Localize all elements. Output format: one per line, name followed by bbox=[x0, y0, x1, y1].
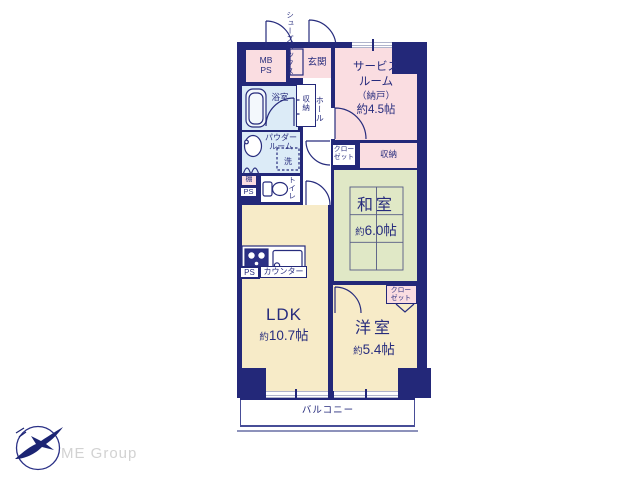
western-room-name: 洋室 bbox=[346, 320, 402, 338]
balcony-outer-line bbox=[237, 430, 418, 432]
western-closet-label: クロー ゼット bbox=[387, 287, 415, 303]
ldk-name: LDK bbox=[256, 305, 312, 325]
logo-mark bbox=[15, 427, 63, 470]
ps-shaft-kitchen-box: PS bbox=[239, 266, 260, 279]
powder-room-label: パウダー ルーム bbox=[260, 133, 302, 151]
counter-label: カウンター bbox=[264, 267, 304, 276]
ps-kitchen-label: PS bbox=[244, 268, 255, 277]
western-room-size: 約5.4帖 bbox=[342, 342, 406, 358]
washer-label: 洗 bbox=[284, 157, 292, 166]
pillar-bottom-left bbox=[237, 368, 266, 398]
ldk-size: 約10.7帖 bbox=[246, 328, 322, 344]
toilet-label: トイレ bbox=[287, 176, 296, 200]
shoes-box-label-col2: ボックス bbox=[286, 43, 295, 75]
shoes-box-label-col1: シューズ bbox=[286, 11, 295, 43]
window-tick-top bbox=[372, 39, 374, 51]
hall-label: ホール bbox=[315, 96, 324, 123]
bird-icon bbox=[15, 427, 63, 459]
logo-circle-icon bbox=[17, 427, 60, 470]
ps-upper-label: PS bbox=[243, 187, 253, 196]
storage-label: 収納 bbox=[366, 150, 411, 160]
mb-ps-label: MB PS bbox=[246, 56, 286, 76]
japanese-room-size: 約6.0帖 bbox=[342, 223, 410, 239]
shelf-box: 棚 bbox=[241, 175, 257, 186]
shoes-box-label: シューズボックス bbox=[285, 11, 294, 53]
bathroom-label: 浴室 bbox=[264, 93, 296, 103]
service-room-label: サービス ルーム （納戸） 約4.5帖 bbox=[337, 60, 415, 118]
ps-shaft-upper-box: PS bbox=[239, 186, 258, 198]
window-top bbox=[352, 42, 396, 48]
hall-closet-label: 収納 bbox=[301, 95, 310, 112]
floorplan-page: 棚 PS PS カウンター bbox=[0, 0, 640, 480]
balcony-top-edge bbox=[240, 398, 415, 400]
entrance-label: 玄関 bbox=[303, 58, 331, 69]
balcony-label: バルコニー bbox=[297, 406, 359, 417]
pillar-bottom-right bbox=[398, 368, 431, 398]
bird-streak-icon bbox=[16, 428, 26, 437]
shelf-label: 棚 bbox=[246, 176, 253, 183]
logo-text: ME Group bbox=[61, 445, 137, 462]
room-ldk bbox=[242, 205, 328, 391]
counter-label-box: カウンター bbox=[260, 266, 307, 278]
japanese-room-name: 和室 bbox=[348, 197, 404, 215]
hall-end-closet-label: クロー ゼット bbox=[332, 146, 356, 162]
